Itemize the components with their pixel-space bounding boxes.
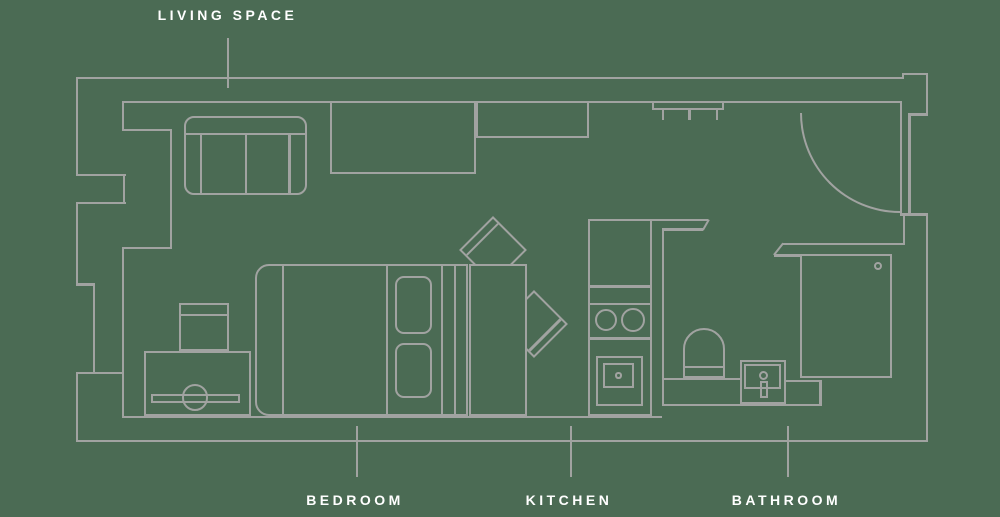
wall-jog-right: [93, 283, 95, 374]
wall-bath-partition-right: [903, 213, 905, 245]
media-unit: [330, 101, 476, 174]
wall-left-outer-lower: [76, 372, 78, 442]
desk-bar: [151, 394, 241, 403]
leader-kitchen: [570, 426, 572, 477]
sofa: [184, 116, 307, 195]
entry-door-swing-arc: [800, 113, 900, 213]
bed: [255, 264, 468, 416]
entry-door-leaf: [900, 101, 902, 216]
desk-chair-back-line: [181, 314, 227, 316]
shower-head: [874, 262, 882, 270]
dining-chair-right-back: [528, 318, 561, 351]
sofa-cushion-divider: [245, 133, 247, 192]
kitchen-sink: [596, 356, 643, 406]
label-kitchen: KITCHEN: [526, 492, 613, 508]
bed-head-line-1: [441, 266, 443, 414]
leader-bedroom: [356, 426, 358, 477]
kitchen-unit-divider: [590, 303, 650, 305]
label-bedroom: BEDROOM: [306, 492, 404, 508]
wall-bath-wedge-top: [783, 243, 905, 245]
wall-inner-left-upper: [122, 101, 124, 130]
bathroom-sink-pedestal: [760, 381, 768, 398]
bedside-table: [469, 264, 527, 416]
bath-floor-edge-left: [662, 378, 740, 380]
wall-right-notch: [926, 73, 928, 116]
bed-mattress-line: [386, 266, 388, 414]
kitchen-unit: [588, 219, 652, 417]
coat-hook: [662, 110, 664, 120]
wall-kitchen-wedge-bottom: [662, 228, 703, 230]
wall-notch-left: [902, 73, 904, 80]
coat-hook: [688, 110, 690, 120]
leader-bathroom: [787, 426, 789, 477]
wall-notch-top: [902, 73, 928, 75]
bathroom-sink: [740, 360, 786, 404]
sofa-arm-left: [200, 133, 202, 192]
dining-chair-top-back: [466, 223, 499, 256]
label-living-space: LIVING SPACE: [158, 7, 298, 23]
bath-step-right: [819, 380, 821, 406]
wall-kitchen-top: [652, 219, 709, 221]
bath-floor-edge-bottom: [662, 404, 822, 406]
kitchen-unit-divider: [590, 285, 650, 287]
bed-head-line-2: [454, 266, 456, 414]
desk-chair: [179, 303, 229, 350]
wall-left-outer-mid: [76, 202, 78, 286]
wall-jog-bottom: [76, 372, 125, 374]
shower-top-extension: [774, 254, 800, 256]
floor-plan: LIVING SPACE BEDROOM KITCHEN BATHROOM: [0, 0, 1000, 517]
counter-unit: [476, 101, 588, 138]
bed-foot-line: [282, 266, 284, 414]
wall-closet-top: [122, 129, 173, 131]
wall-top-outer: [76, 77, 904, 79]
leader-living-space: [227, 38, 229, 88]
wall-closet-right: [170, 129, 172, 249]
sofa-arm-right: [288, 133, 290, 192]
wall-inner-left-lower: [122, 247, 124, 418]
wall-closet-bottom: [122, 247, 173, 249]
bath-step-top: [786, 380, 822, 382]
coat-hook: [716, 110, 718, 120]
label-bathroom: BATHROOM: [732, 492, 841, 508]
stove-burner: [595, 309, 617, 331]
wall-pillar-top: [76, 174, 126, 176]
toilet-seat-line: [685, 366, 723, 368]
toilet: [683, 328, 725, 377]
pillow: [395, 276, 432, 334]
shower: [800, 254, 892, 378]
wall-right-outer-inset: [908, 113, 910, 215]
kitchen-sink-drain: [615, 372, 621, 378]
coat-rack: [652, 101, 725, 110]
wall-left-outer-upper: [76, 77, 78, 174]
wall-bottom-outer: [76, 440, 929, 442]
wall-right-outer-lower: [926, 213, 928, 442]
pillow: [395, 343, 432, 398]
kitchen-unit-divider: [590, 337, 650, 339]
wall-pillar-bottom: [76, 202, 126, 204]
wall-kitchen-wedge-diagonal: [702, 220, 710, 231]
stove-burner: [621, 308, 646, 333]
wall-pillar-right: [123, 174, 125, 204]
desk: [144, 351, 251, 417]
